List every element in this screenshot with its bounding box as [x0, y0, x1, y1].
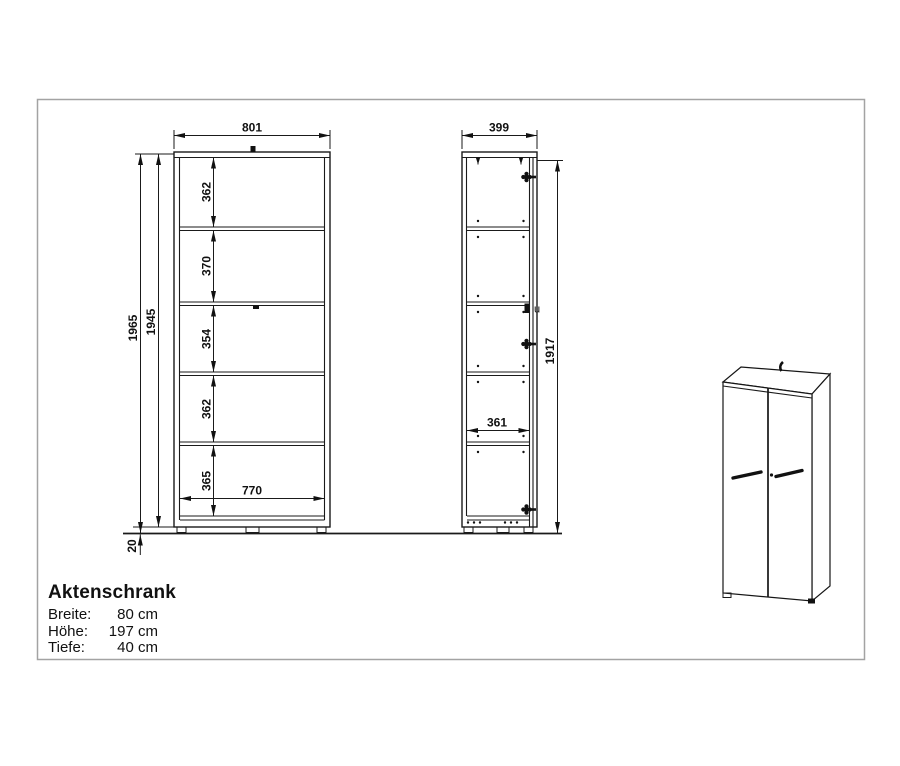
side-feet [464, 527, 533, 533]
spec-label: Tiefe: [48, 640, 104, 657]
side-depth-dimension: 399 [462, 121, 537, 150]
compartment-4-dim-label: 362 [200, 399, 214, 419]
top-fitting-mark [251, 146, 256, 152]
spec-label: Breite: [48, 607, 104, 624]
shelf-fitting-mark [253, 306, 259, 310]
front-width-dim-label: 801 [242, 121, 262, 135]
spec-table: Breite: 80 cm Höhe: 197 cm Tiefe: 40 cm [48, 607, 158, 657]
front-feet [177, 527, 326, 533]
compartment-3-dim-label: 354 [200, 329, 214, 349]
spec-row-depth: Tiefe: 40 cm [48, 640, 158, 657]
plinth-height-dim-label: 20 [125, 539, 139, 553]
front-height-dimensions: 1965 1945 20 [125, 154, 174, 555]
front-view: 801 1965 1945 20 362 370 [125, 121, 330, 556]
door-catch-symbol: u [534, 304, 540, 316]
spec-value: 40 cm [104, 640, 158, 657]
cabinet-3d-preview [723, 362, 830, 604]
front-total-height-dim-label: 1965 [126, 314, 140, 341]
front-width-dimension: 801 [174, 121, 330, 150]
side-interior-depth-dim-label: 361 [487, 416, 507, 430]
product-title: Aktenschrank [48, 582, 176, 604]
spec-row-height: Höhe: 197 cm [48, 624, 158, 641]
front-interior-width-dim-label: 770 [242, 484, 262, 498]
front-body-height-dim-label: 1945 [144, 308, 158, 335]
side-height-dimension: 1917 [537, 161, 563, 534]
drawing-page: 801 1965 1945 20 362 370 [0, 0, 900, 766]
cabinet-side-face [812, 374, 830, 601]
compartment-5-dim-label: 365 [200, 471, 214, 491]
compartment-1-dim-label: 362 [200, 182, 214, 202]
side-height-dim-label: 1917 [543, 337, 557, 364]
preview-foot-right [808, 599, 815, 604]
spec-row-width: Breite: 80 cm [48, 607, 158, 624]
spec-label: Höhe: [48, 624, 104, 641]
top-key-mark [780, 362, 783, 371]
compartment-2-dim-label: 370 [200, 256, 214, 276]
spec-value: 80 cm [104, 607, 158, 624]
handle-dot [770, 473, 773, 476]
side-depth-dim-label: 399 [489, 121, 509, 135]
side-view: u 399 1917 [462, 121, 563, 534]
product-info: Aktenschrank Breite: 80 cm Höhe: 197 cm … [48, 582, 176, 657]
spec-value: 197 cm [104, 624, 158, 641]
